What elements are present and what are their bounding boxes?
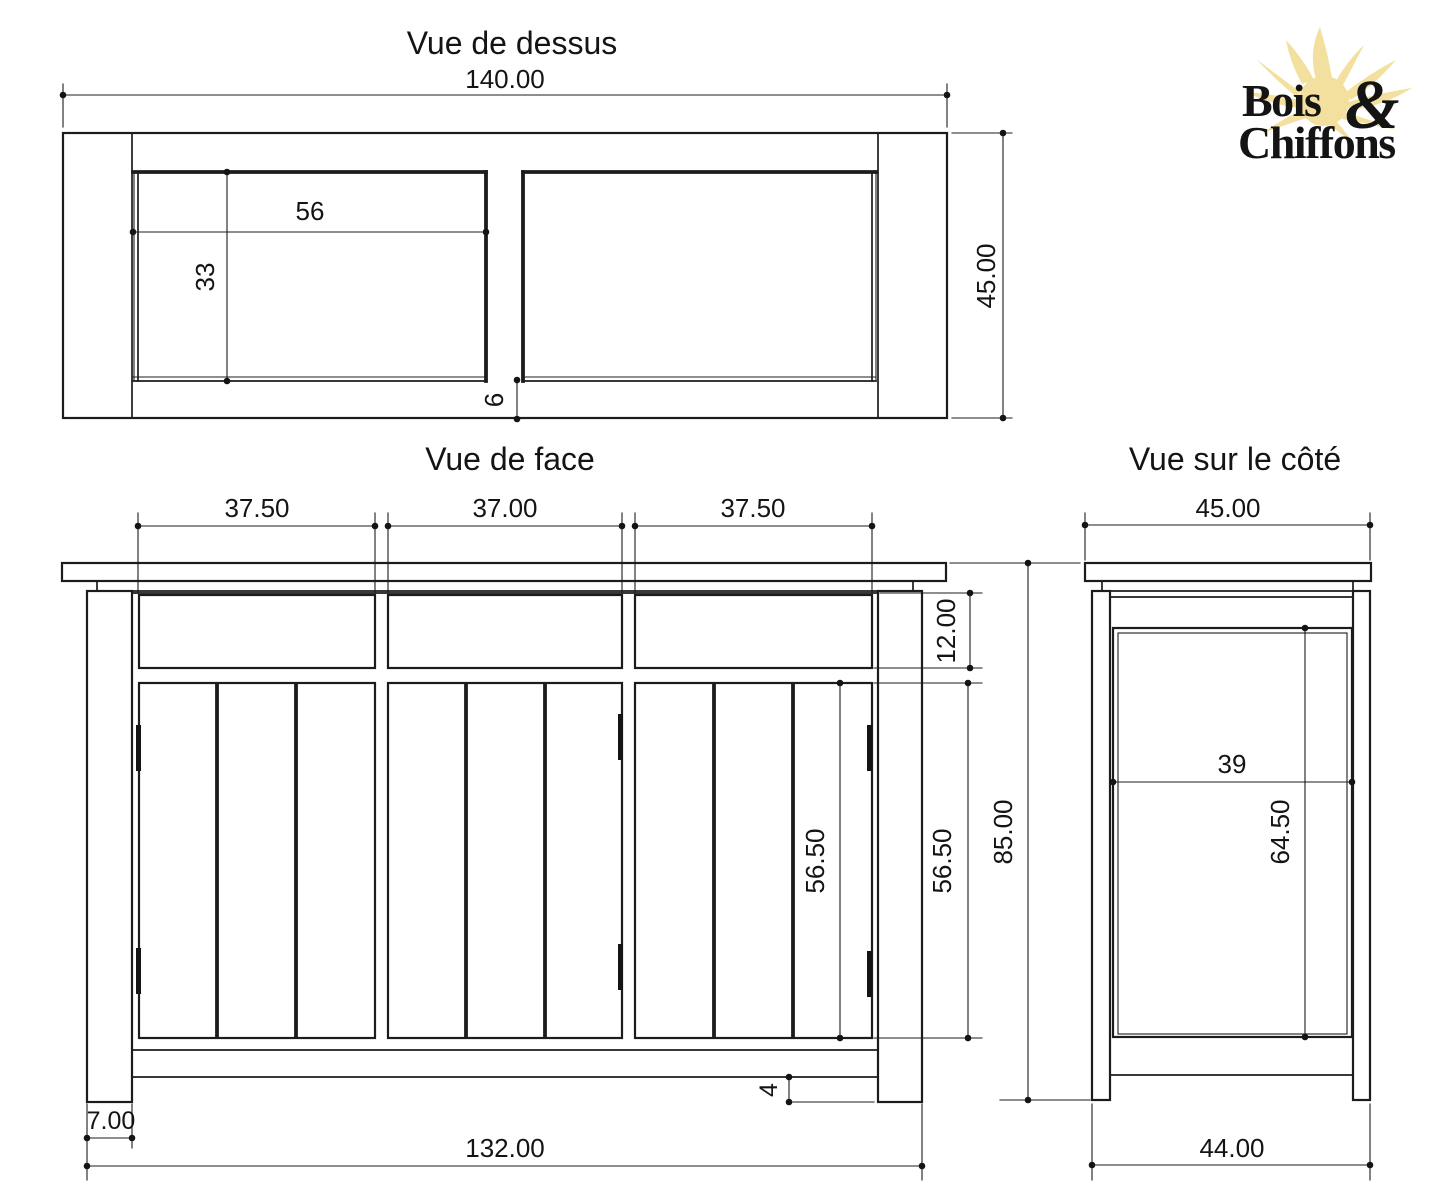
countertop: [62, 563, 946, 581]
drawer-right: [635, 595, 872, 668]
dim-label-drawer-height: 12.00: [931, 598, 961, 663]
side-countertop: [1085, 563, 1371, 581]
side-panel-inner: [1118, 633, 1347, 1034]
top-view-title: Vue de dessus: [407, 25, 618, 61]
countertop-lip: [97, 581, 913, 591]
dim-total-height: 85.00: [950, 560, 1090, 1104]
dim-label-divider: 6: [479, 393, 509, 407]
side-view-geometry: [1085, 563, 1371, 1100]
door-center: [388, 683, 622, 1038]
dim-top-panel-width: 56: [130, 196, 490, 235]
dim-front-inner-width: 132.00: [84, 1104, 926, 1180]
dim-label-door-left: 37.50: [224, 493, 289, 523]
dim-side-base-depth: 44.00: [1089, 1104, 1374, 1180]
front-view: Vue de face: [62, 441, 1090, 1180]
dim-label-inner-width: 132.00: [465, 1133, 545, 1163]
dim-top-width: 140.00: [60, 64, 951, 127]
dim-label-panel-width: 56: [296, 196, 325, 226]
dim-front-doors: 37.50 37.00 37.50: [135, 493, 876, 593]
side-back-leg: [1353, 591, 1370, 1100]
left-leg: [87, 591, 132, 1102]
top-view: Vue de dessus 140.00: [60, 25, 1012, 422]
logo-word-chiffons: Chiffons: [1238, 117, 1395, 168]
dim-side-top-depth: 45.00: [1082, 493, 1374, 560]
logo: & Bois Chiffons: [1238, 27, 1412, 168]
dim-label-door-height-inner: 56.50: [800, 828, 830, 893]
dim-front-door-height-outer: 56.50: [874, 680, 982, 1042]
side-front-leg: [1092, 591, 1110, 1100]
dim-label-door-center: 37.00: [472, 493, 537, 523]
dim-label-side-panel-width: 39: [1218, 749, 1247, 779]
dim-top-divider: 6: [479, 377, 520, 423]
hinge-icon: [618, 714, 623, 760]
dim-front-plinth: 4: [755, 1074, 874, 1106]
furniture-drawing: Vue de dessus 140.00: [0, 0, 1445, 1190]
hinge-icon: [618, 944, 623, 990]
dim-side-panel-height: 64.50: [1265, 625, 1308, 1041]
dim-top-depth: 45.00: [952, 130, 1012, 422]
dim-label-door-right: 37.50: [720, 493, 785, 523]
dim-label-top-depth: 45.00: [971, 243, 1001, 308]
side-view: Vue sur le côté 45.00 39: [1082, 441, 1374, 1180]
side-countertop-lip: [1102, 581, 1353, 591]
hinge-icon: [136, 725, 141, 771]
dim-label-top-width: 140.00: [465, 64, 545, 94]
dim-label-plinth: 4: [755, 1083, 783, 1097]
drawer-center: [388, 595, 622, 668]
hinge-icon: [867, 725, 872, 771]
dim-label-leg-width: 7.00: [87, 1107, 136, 1135]
dim-top-panel-depth: 33: [190, 169, 230, 385]
dim-front-door-height-inner: 56.50: [800, 680, 843, 1042]
hinge-icon: [136, 948, 141, 994]
drawer-left: [139, 595, 375, 668]
side-panel: [1113, 628, 1352, 1037]
dim-label-side-base-depth: 44.00: [1199, 1133, 1264, 1163]
dim-label-total-height: 85.00: [988, 799, 1018, 864]
dim-label-side-panel-height: 64.50: [1265, 799, 1295, 864]
door-right: [635, 683, 872, 1038]
dim-front-leg-width: 7.00: [84, 1104, 136, 1180]
side-view-title: Vue sur le côté: [1129, 441, 1341, 477]
door-left: [139, 683, 375, 1038]
technical-drawing-page: Vue de dessus 140.00: [0, 0, 1445, 1190]
dim-label-panel-depth: 33: [190, 263, 220, 292]
dim-side-panel-width: 39: [1110, 749, 1356, 785]
front-view-title: Vue de face: [425, 441, 595, 477]
dim-label-door-height-outer: 56.50: [927, 828, 957, 893]
dim-front-drawer-height: 12.00: [874, 590, 982, 672]
hinge-icon: [867, 951, 872, 997]
dim-label-side-top-depth: 45.00: [1195, 493, 1260, 523]
